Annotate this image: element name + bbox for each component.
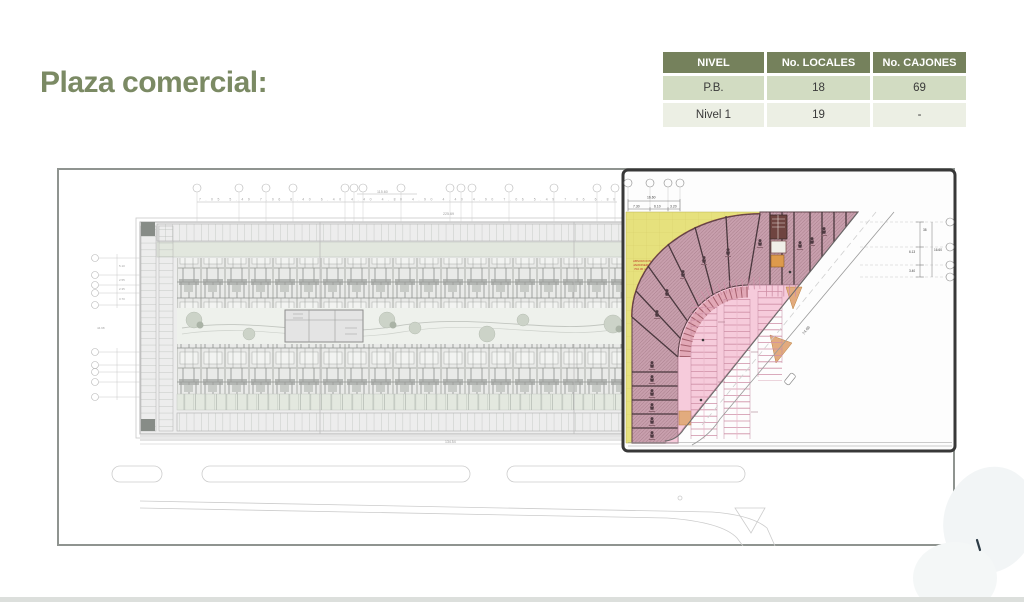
table-row: 69 <box>873 76 966 100</box>
svg-text:16.60: 16.60 <box>647 196 656 200</box>
svg-text:16.60: 16.60 <box>934 248 942 252</box>
leaf-watermark <box>900 460 1024 602</box>
svg-text:5.10: 5.10 <box>119 264 125 268</box>
col-header-cajones: No. CAJONES <box>873 52 966 73</box>
page-title: Plaza comercial: <box>40 66 267 100</box>
svg-text:2.55: 2.55 <box>119 278 125 282</box>
bottom-total-text: 134.54 <box>445 440 456 444</box>
plaza-detail-drawing: ABSORCION JARDINERA 702.30 m2 <box>620 167 958 454</box>
table-row: 18 <box>767 76 870 100</box>
col-header-locales: No. LOCALES <box>767 52 870 73</box>
svg-text:7.30: 7.30 <box>633 205 640 209</box>
table-row: P.B. <box>663 76 764 100</box>
bottom-edge-strip <box>0 597 1024 602</box>
levels-table: NIVEL No. LOCALES No. CAJONES P.B. 18 69… <box>663 52 966 127</box>
siteplan-top-dimensions <box>193 184 619 222</box>
table-row: 19 <box>767 103 870 127</box>
svg-text:3.70: 3.70 <box>119 297 125 301</box>
table-row: Nivel 1 <box>663 103 764 127</box>
top-total2-text: 225.69 <box>443 212 454 216</box>
svg-text:44.98: 44.98 <box>97 326 105 330</box>
col-header-nivel: NIVEL <box>663 52 764 73</box>
slide: Plaza comercial: NIVEL No. LOCALES No. C… <box>0 0 1024 602</box>
left-dims-text: 5.10 2.55 2.35 3.70 44.98 <box>97 264 125 330</box>
svg-text:6.10: 6.10 <box>654 205 661 209</box>
top-dims-text: 7.05 5.49 7.06 6.40 6.40 4.40 4.80 4.90 … <box>199 198 615 202</box>
svg-text:38: 38 <box>923 228 927 232</box>
top-total-text: 115.60 <box>377 190 388 194</box>
svg-text:3.20: 3.20 <box>670 205 677 209</box>
svg-text:3.40: 3.40 <box>909 269 915 273</box>
table-row: - <box>873 103 966 127</box>
svg-text:6.13: 6.13 <box>909 250 915 254</box>
svg-text:2.35: 2.35 <box>119 287 125 291</box>
